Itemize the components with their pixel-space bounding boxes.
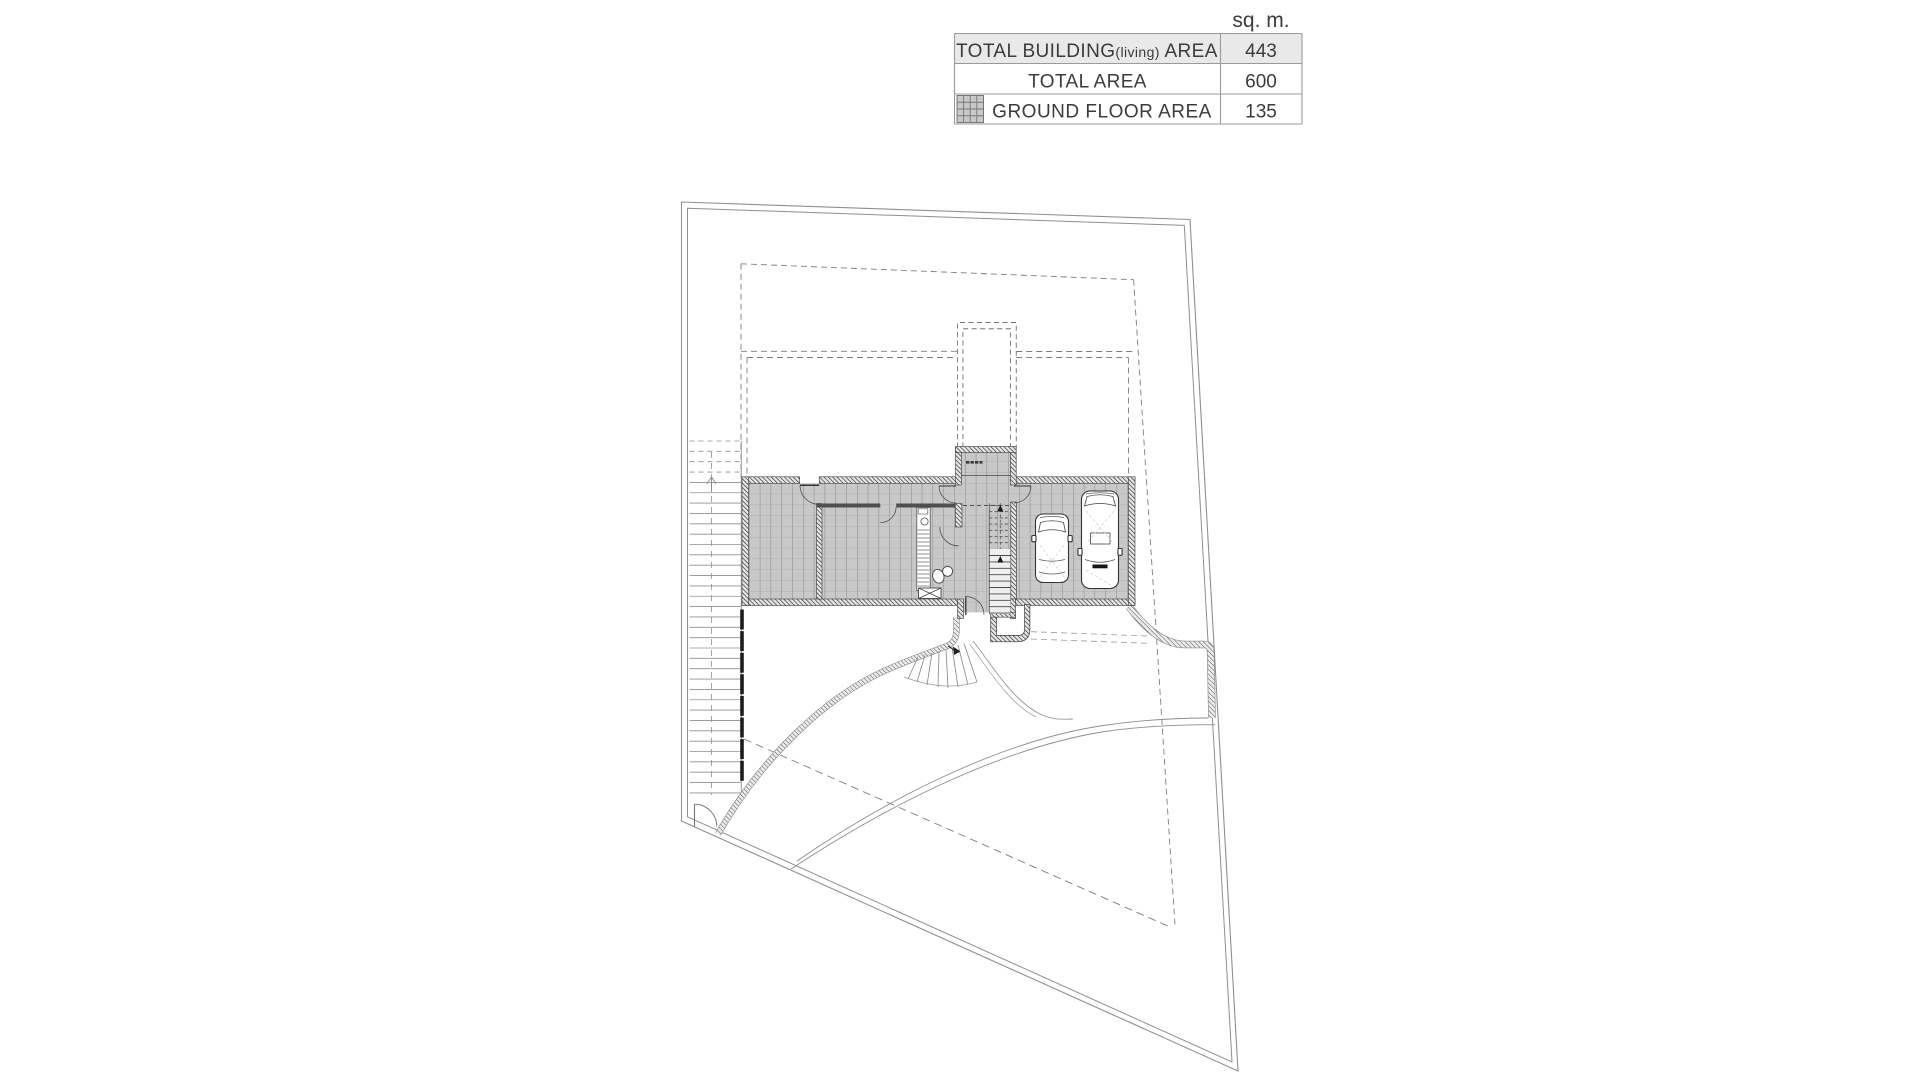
svg-text:GROUND FLOOR AREA: GROUND FLOOR AREA [992,102,1212,123]
svg-text:TOTAL BUILDING(living) AREA: TOTAL BUILDING(living) AREA [956,41,1218,62]
svg-text:sq. m.: sq. m. [1232,9,1289,32]
svg-text:135: 135 [1245,102,1277,123]
svg-text:443: 443 [1245,41,1277,62]
svg-text:600: 600 [1245,71,1277,92]
svg-text:TOTAL AREA: TOTAL AREA [1028,71,1147,92]
